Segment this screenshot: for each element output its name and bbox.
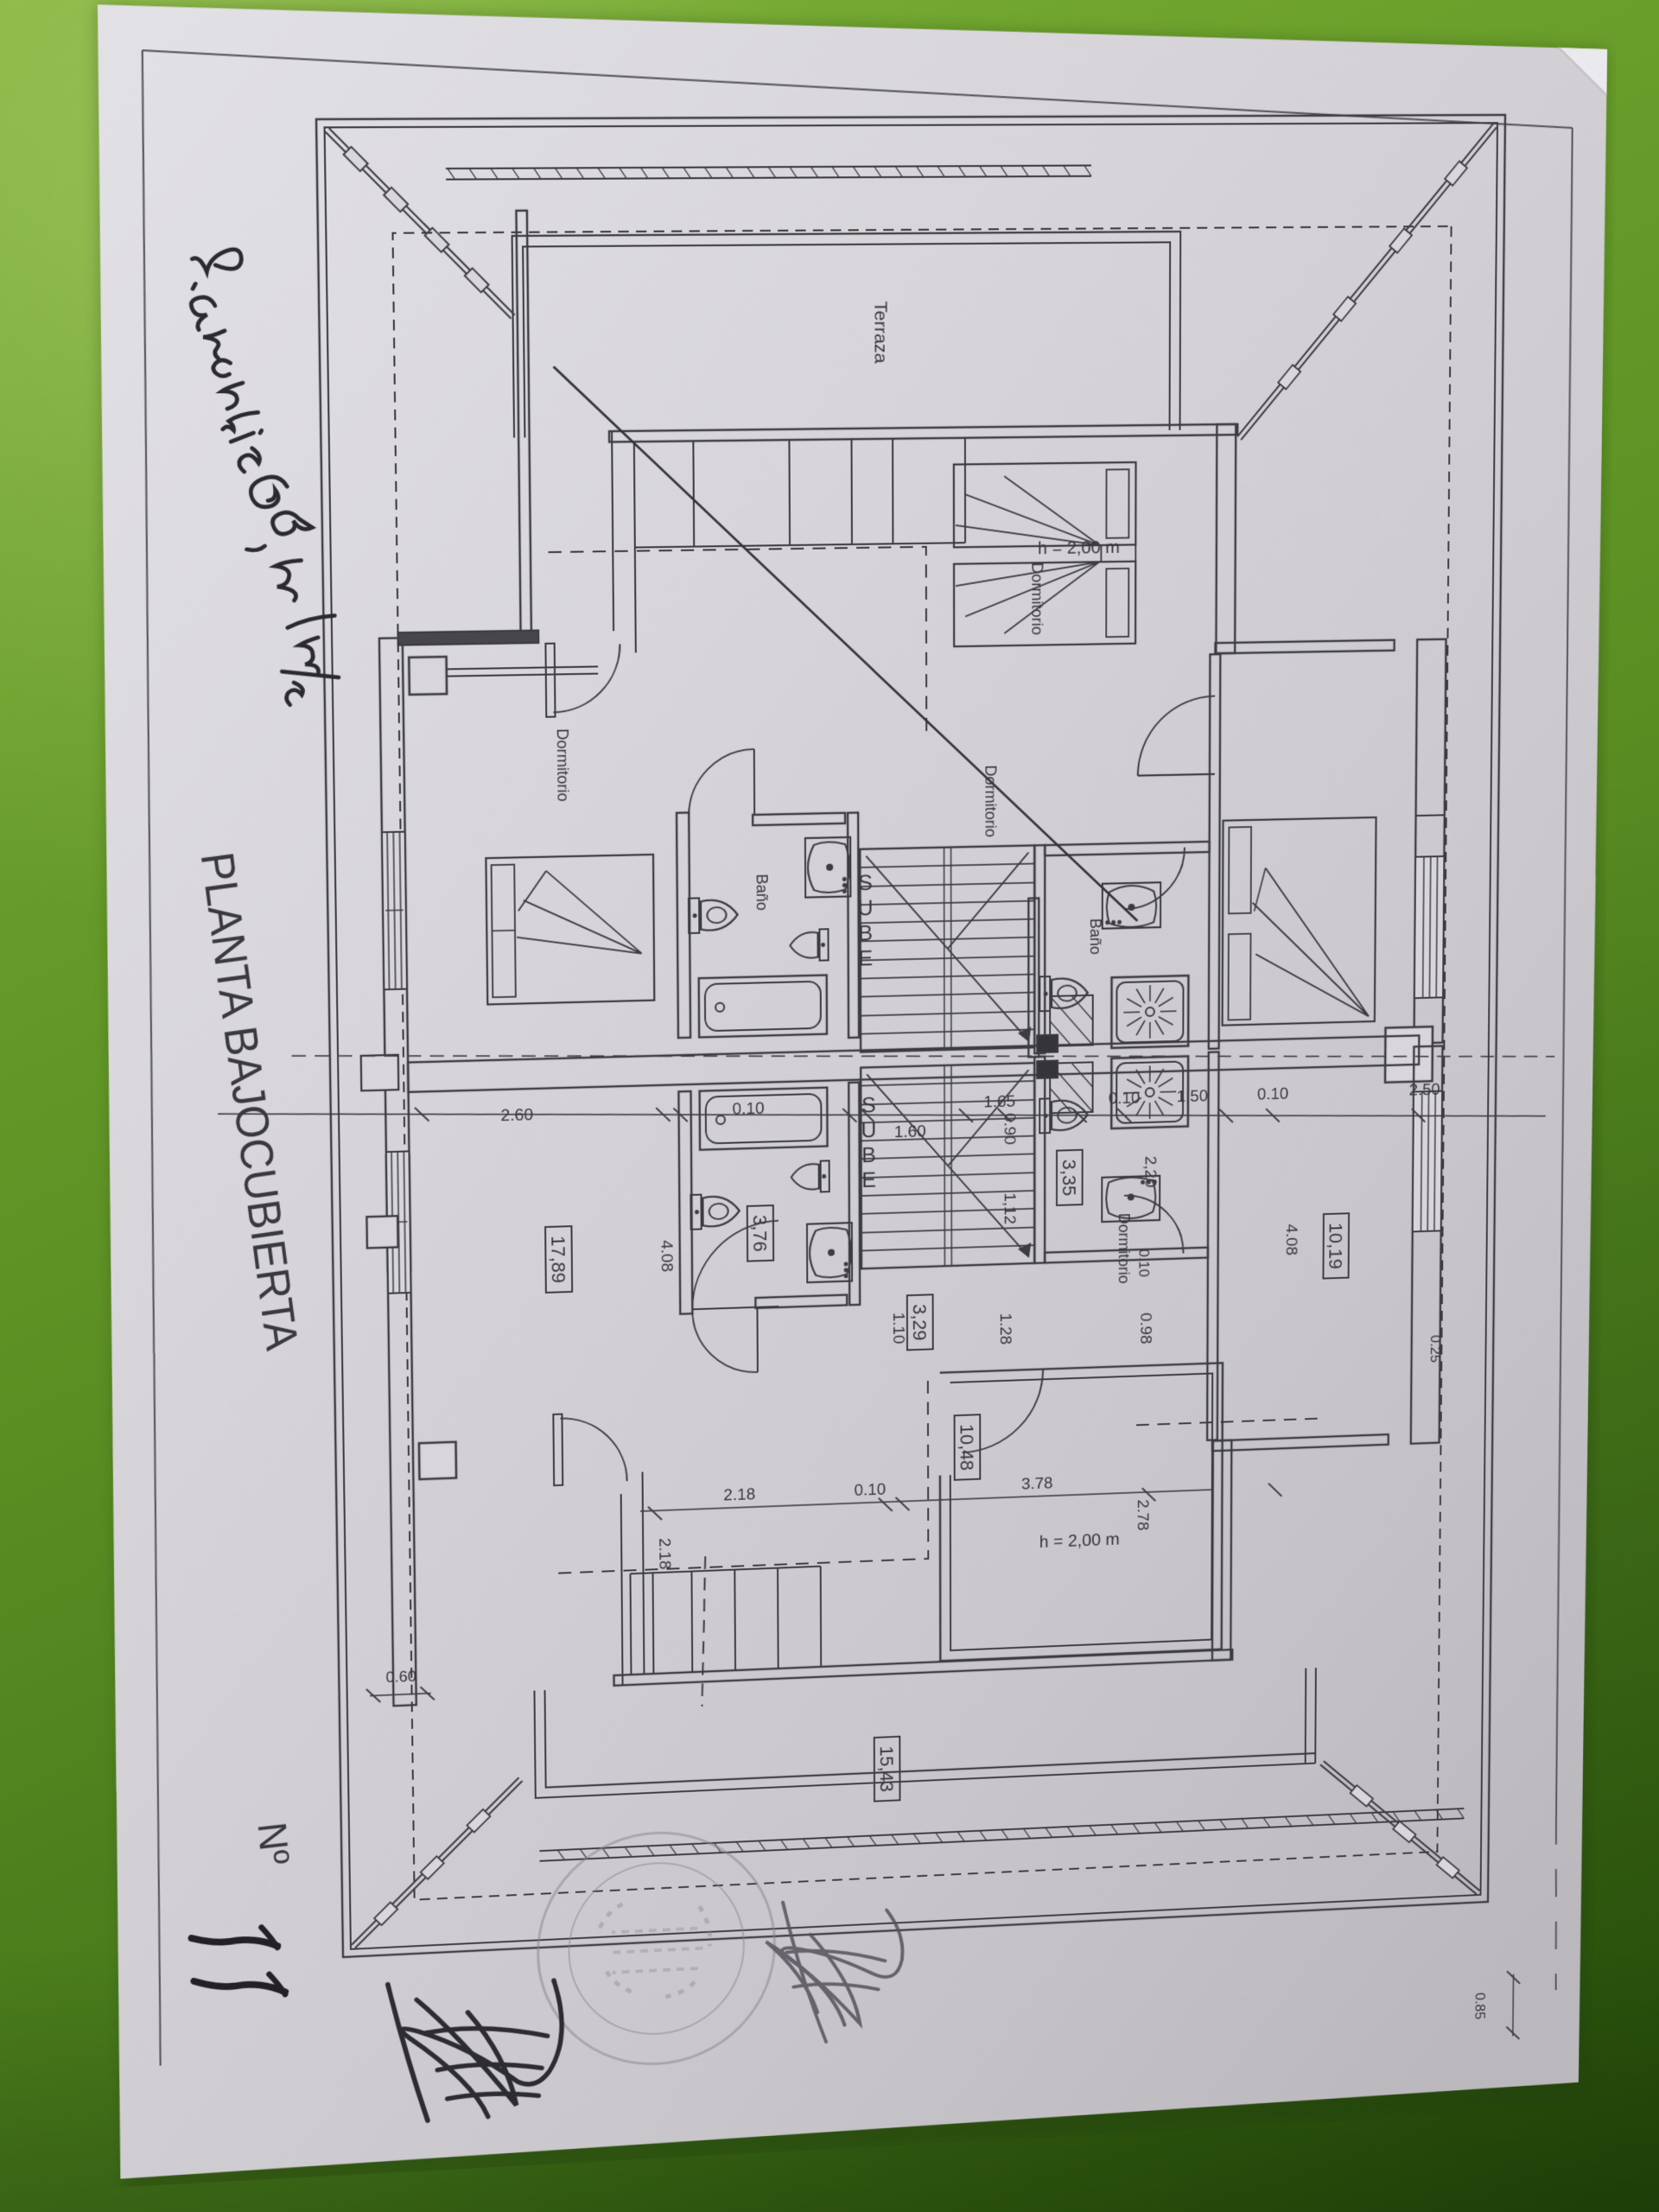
svg-text:2.50: 2.50 — [1409, 1080, 1440, 1099]
svg-text:0.10: 0.10 — [732, 1099, 764, 1119]
svg-text:Baño: Baño — [753, 874, 772, 911]
svg-text:S: S — [858, 871, 873, 895]
svg-text:2.18: 2.18 — [655, 1538, 674, 1570]
svg-text:E: E — [861, 1168, 876, 1192]
svg-text:0.10: 0.10 — [854, 1480, 886, 1499]
svg-text:2.78: 2.78 — [1134, 1499, 1152, 1531]
svg-text:U: U — [861, 1118, 876, 1142]
svg-text:h = 2,00 m: h = 2,00 m — [1039, 1529, 1120, 1551]
svg-text:1.50: 1.50 — [1177, 1087, 1209, 1106]
svg-text:S: S — [861, 1094, 876, 1118]
svg-text:4.08: 4.08 — [1282, 1224, 1300, 1255]
svg-text:1.60: 1.60 — [894, 1122, 926, 1141]
svg-text:2.60: 2.60 — [500, 1105, 533, 1125]
svg-text:1.28: 1.28 — [996, 1313, 1014, 1344]
svg-text:3,29: 3,29 — [909, 1304, 930, 1341]
svg-text:10,48: 10,48 — [957, 1424, 977, 1471]
svg-text:B: B — [861, 1143, 876, 1167]
svg-text:4.08: 4.08 — [658, 1240, 677, 1272]
svg-text:h = 2,00 m: h = 2,00 m — [1038, 537, 1120, 558]
svg-text:3,35: 3,35 — [1058, 1159, 1079, 1196]
svg-text:0.10: 0.10 — [1136, 1249, 1153, 1277]
svg-text:1.65: 1.65 — [983, 1092, 1015, 1111]
svg-text:B: B — [858, 921, 873, 945]
svg-text:3,76: 3,76 — [749, 1215, 771, 1252]
svg-text:0.10: 0.10 — [1257, 1084, 1288, 1103]
svg-text:0.60: 0.60 — [385, 1667, 416, 1686]
svg-text:0.90: 0.90 — [1001, 1113, 1019, 1145]
svg-text:E: E — [858, 947, 873, 971]
svg-text:Dormitorio: Dormitorio — [554, 728, 573, 802]
svg-text:Terraza: Terraza — [870, 302, 891, 364]
svg-text:1.10: 1.10 — [889, 1312, 907, 1344]
svg-text:3.78: 3.78 — [1021, 1474, 1052, 1493]
svg-text:1,12: 1,12 — [1001, 1192, 1019, 1224]
svg-text:0.25: 0.25 — [1427, 1335, 1444, 1363]
svg-text:10,19: 10,19 — [1325, 1223, 1346, 1270]
svg-text:Nº: Nº — [250, 1820, 299, 1867]
svg-text:0.98: 0.98 — [1136, 1313, 1154, 1344]
svg-text:15,43: 15,43 — [876, 1745, 897, 1792]
svg-text:Dormitorio: Dormitorio — [1028, 563, 1046, 635]
svg-text:2,20: 2,20 — [1141, 1156, 1160, 1188]
svg-text:0.10: 0.10 — [1109, 1089, 1141, 1108]
svg-text:2.18: 2.18 — [723, 1485, 755, 1505]
svg-text:0.85: 0.85 — [1472, 1993, 1489, 2020]
svg-text:17,89: 17,89 — [547, 1236, 569, 1284]
svg-text:Dormitorio: Dormitorio — [1116, 1213, 1133, 1284]
svg-text:Baño: Baño — [1087, 918, 1104, 955]
svg-text:U: U — [857, 896, 873, 920]
